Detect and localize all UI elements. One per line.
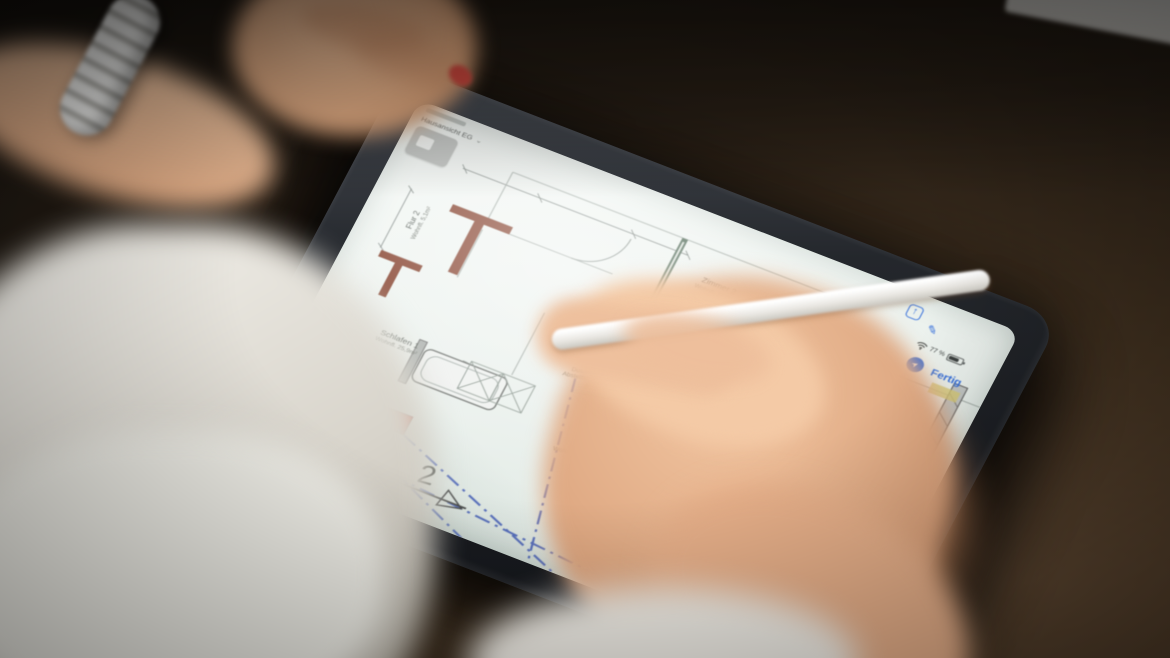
photo-scene: Schlafen 1 Wohnfl. 25,9m² Zimmer 2 Wohnf… (0, 0, 1170, 658)
share-icon: ↑ (910, 306, 920, 318)
wifi-icon (915, 341, 929, 352)
thumbnail-image-icon (415, 135, 435, 151)
done-button[interactable]: Fertig (928, 367, 963, 388)
battery-percent: 77 % (928, 346, 946, 357)
paper-sheet (1004, 0, 1170, 52)
wall-brown-segments (361, 193, 511, 327)
battery-icon (946, 353, 965, 366)
markup-button[interactable]: ✎ (924, 322, 941, 339)
markup-pen-icon: ✎ (924, 322, 941, 338)
